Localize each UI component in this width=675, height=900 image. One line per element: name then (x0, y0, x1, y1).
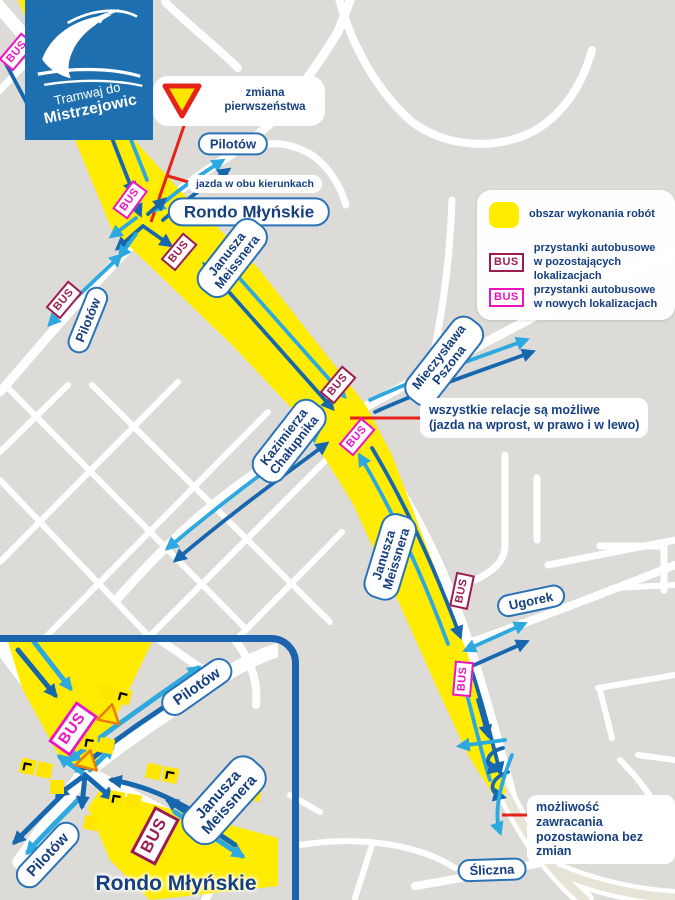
note-uturn: możliwość zawracania pozostawiona bez zm… (527, 795, 675, 864)
legend-work-area-label: obszar wykonania robót (529, 208, 655, 222)
legend-bus-existing: BUS przystanki autobusowe w pozostającyc… (489, 242, 675, 283)
legend-bus-new-label: przystanki autobusowe w nowych lokalizac… (534, 284, 658, 312)
legend-bus-existing-label: przystanki autobusowe w pozostających lo… (534, 242, 675, 283)
street-label-sliczna: Śliczna (457, 857, 527, 883)
priority-change-legend: zmiana pierwszeństwa (153, 76, 325, 126)
project-logo: Tramwaj do Mistrzejowic (25, 0, 153, 140)
bus-stop-new-badge: BUS (452, 661, 474, 697)
inset-title: Rondo Młyńskie (95, 872, 256, 896)
bus-existing-icon: BUS (489, 253, 524, 272)
map-legend: obszar wykonania robót BUS przystanki au… (477, 190, 675, 320)
yield-sign-icon (161, 82, 203, 120)
legend-bus-new: BUS przystanki autobusowe w nowych lokal… (489, 284, 657, 312)
legend-work-area: obszar wykonania robót (489, 202, 655, 228)
tram-icon (33, 8, 145, 88)
bus-new-icon: BUS (489, 288, 524, 307)
priority-change-label: zmiana pierwszeństwa (213, 87, 317, 115)
map-canvas: Tramwaj do Mistrzejowic zmiana pierwszeń… (0, 0, 675, 900)
note-all-relations: wszystkie relacje są możliwe (jazda na w… (420, 398, 648, 438)
work-area-swatch (489, 202, 519, 228)
street-label-pilotow-top: Pilotów (198, 132, 268, 155)
note-both-directions: jazda w obu kierunkach (188, 175, 322, 193)
